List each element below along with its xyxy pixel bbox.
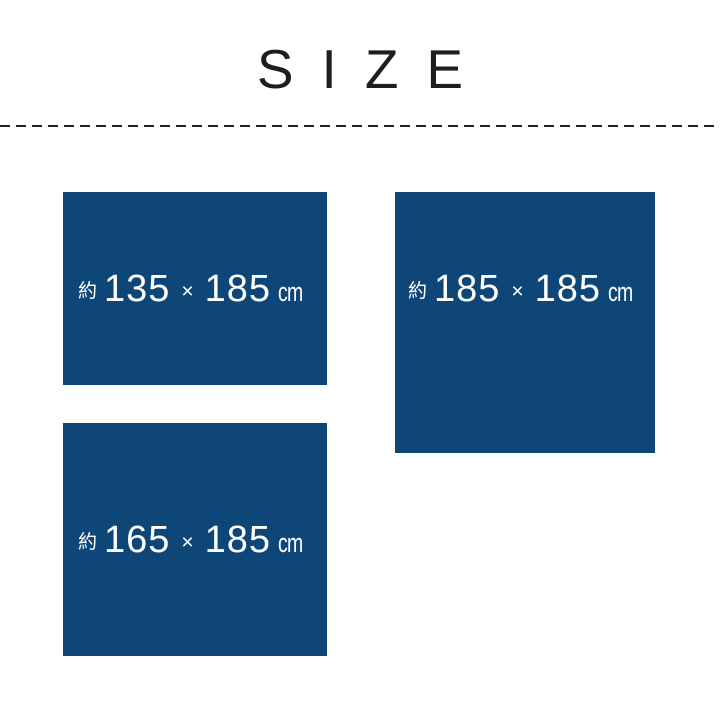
depth-value: 185 (205, 270, 271, 308)
size-label-165x185: 約165×185cm (78, 521, 312, 559)
size-box-165x185: 約165×185cm (63, 423, 327, 656)
page-title: SIZE (0, 42, 720, 97)
multiply-sign: × (181, 532, 193, 553)
unit-label: cm (278, 279, 302, 306)
multiply-sign: × (511, 281, 523, 302)
size-box-135x185: 約135×185cm (63, 192, 327, 385)
depth-value: 185 (205, 521, 271, 559)
width-value: 165 (104, 521, 170, 559)
size-label-185x185: 約185×185cm (408, 270, 642, 308)
size-label-135x185: 約135×185cm (78, 270, 312, 308)
approx-prefix: 約 (78, 282, 97, 301)
width-value: 185 (434, 270, 500, 308)
size-box-185x185: 約185×185cm (395, 192, 655, 453)
width-value: 135 (104, 270, 170, 308)
size-infographic: SIZE 約135×185cm 約185×185cm 約165×185cm (0, 0, 720, 720)
approx-prefix: 約 (78, 533, 97, 552)
depth-value: 185 (535, 270, 601, 308)
approx-prefix: 約 (408, 282, 427, 301)
multiply-sign: × (181, 281, 193, 302)
unit-label: cm (278, 530, 302, 557)
dashed-divider (0, 125, 720, 127)
unit-label: cm (608, 279, 632, 306)
